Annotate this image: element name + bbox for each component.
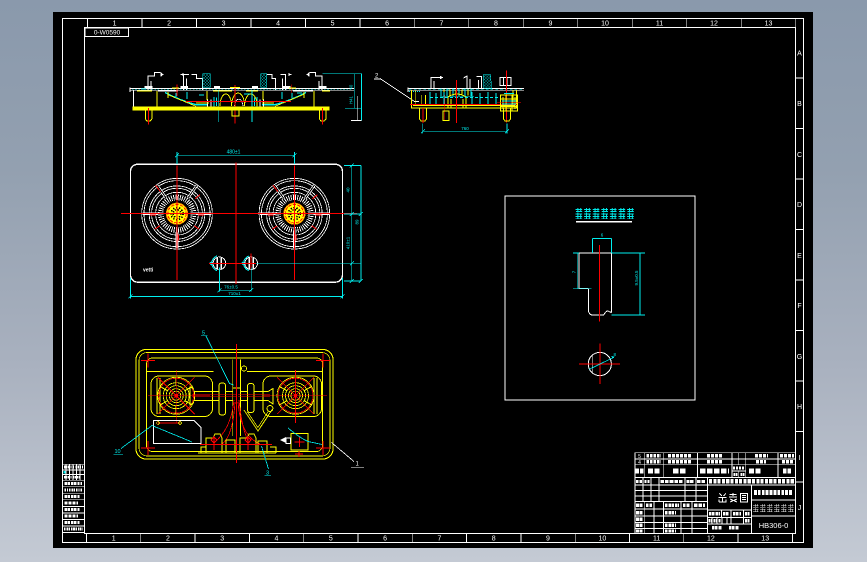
svg-text:6: 6 — [383, 536, 387, 543]
svg-text:12: 12 — [710, 21, 718, 28]
svg-text:D: D — [797, 202, 802, 209]
svg-text:710±1: 710±1 — [228, 291, 241, 296]
svg-text:4: 4 — [276, 21, 280, 28]
svg-text:9: 9 — [546, 536, 550, 543]
svg-text:I: I — [799, 455, 801, 462]
svg-text:A: A — [797, 51, 802, 58]
svg-text:410±1: 410±1 — [346, 236, 351, 249]
svg-text:10: 10 — [601, 21, 609, 28]
svg-text:11: 11 — [656, 21, 663, 28]
svg-text:6: 6 — [385, 21, 389, 28]
svg-text:G: G — [797, 354, 802, 361]
svg-text:89: 89 — [355, 219, 360, 225]
svg-text:F: F — [797, 303, 801, 310]
svg-text:13: 13 — [765, 21, 773, 28]
svg-text:2: 2 — [166, 536, 170, 543]
svg-text:7: 7 — [440, 21, 444, 28]
svg-text:3: 3 — [222, 21, 226, 28]
svg-text:13: 13 — [761, 536, 769, 543]
svg-text:11: 11 — [653, 536, 660, 543]
svg-text:1: 1 — [113, 21, 117, 28]
svg-text:9: 9 — [549, 21, 553, 28]
svg-text:9.5±0.5: 9.5±0.5 — [634, 270, 639, 285]
svg-text:HB306-0: HB306-0 — [759, 521, 789, 530]
svg-text:5: 5 — [331, 21, 335, 28]
svg-text:8: 8 — [494, 21, 498, 28]
svg-text:76±0.5: 76±0.5 — [224, 285, 238, 290]
svg-text:4: 4 — [638, 460, 641, 466]
svg-text:B: B — [797, 101, 802, 108]
svg-text:8: 8 — [492, 536, 496, 543]
svg-text:10: 10 — [599, 536, 607, 543]
svg-text:4: 4 — [275, 536, 279, 543]
svg-text:C: C — [797, 152, 802, 159]
svg-text:12: 12 — [707, 536, 715, 543]
svg-text:3: 3 — [220, 536, 224, 543]
svg-text:760: 760 — [461, 126, 469, 131]
svg-text:vetti: vetti — [143, 268, 154, 274]
svg-text:0-W0590: 0-W0590 — [94, 30, 121, 37]
svg-text:1: 1 — [112, 536, 116, 543]
svg-text:5: 5 — [329, 536, 333, 543]
svg-text:H: H — [797, 404, 802, 411]
svg-text:40: 40 — [346, 187, 351, 193]
svg-text:E: E — [797, 253, 802, 260]
svg-text:H41: H41 — [349, 95, 354, 103]
svg-text:2: 2 — [167, 21, 171, 28]
svg-text:40: 40 — [349, 84, 354, 89]
svg-text:J: J — [798, 505, 802, 512]
svg-text:480±1: 480±1 — [227, 150, 241, 156]
svg-text:7: 7 — [437, 536, 441, 543]
